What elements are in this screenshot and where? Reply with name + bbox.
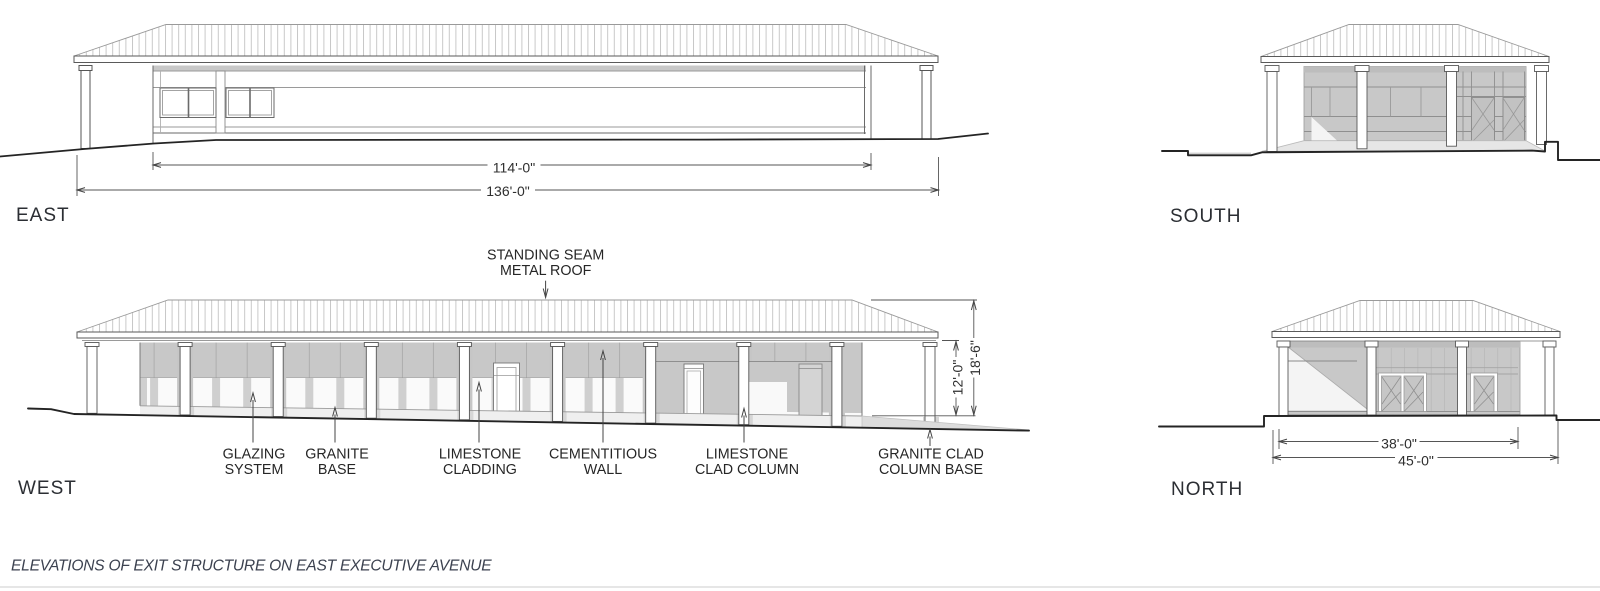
- svg-text:CLADDING: CLADDING: [443, 462, 517, 478]
- svg-text:38'-0": 38'-0": [1381, 435, 1417, 451]
- svg-text:SOUTH: SOUTH: [1170, 206, 1242, 227]
- svg-text:SYSTEM: SYSTEM: [225, 462, 284, 478]
- svg-text:EAST: EAST: [16, 205, 70, 226]
- svg-text:NORTH: NORTH: [1171, 479, 1243, 500]
- svg-text:12'-0": 12'-0": [949, 360, 965, 396]
- svg-text:GLAZING: GLAZING: [223, 446, 286, 462]
- svg-text:WEST: WEST: [18, 478, 77, 499]
- svg-text:BASE: BASE: [318, 462, 356, 478]
- svg-text:METAL ROOF: METAL ROOF: [500, 263, 592, 279]
- svg-text:COLUMN BASE: COLUMN BASE: [879, 462, 983, 478]
- svg-text:LIMESTONE: LIMESTONE: [439, 446, 521, 462]
- svg-text:STANDING SEAM: STANDING SEAM: [487, 247, 604, 263]
- svg-text:GRANITE CLAD: GRANITE CLAD: [878, 446, 984, 462]
- svg-text:CEMENTITIOUS: CEMENTITIOUS: [549, 446, 657, 462]
- svg-text:ELEVATIONS OF EXIT STRUCTURE O: ELEVATIONS OF EXIT STRUCTURE ON EAST EXE…: [11, 558, 492, 575]
- svg-text:LIMESTONE: LIMESTONE: [706, 446, 788, 462]
- svg-text:WALL: WALL: [584, 462, 622, 478]
- svg-text:GRANITE: GRANITE: [305, 446, 369, 462]
- svg-text:18'-6": 18'-6": [967, 340, 983, 376]
- svg-text:45'-0": 45'-0": [1398, 452, 1434, 468]
- svg-text:114'-0": 114'-0": [493, 159, 535, 175]
- svg-text:136'-0": 136'-0": [486, 183, 529, 199]
- svg-text:CLAD COLUMN: CLAD COLUMN: [695, 462, 799, 478]
